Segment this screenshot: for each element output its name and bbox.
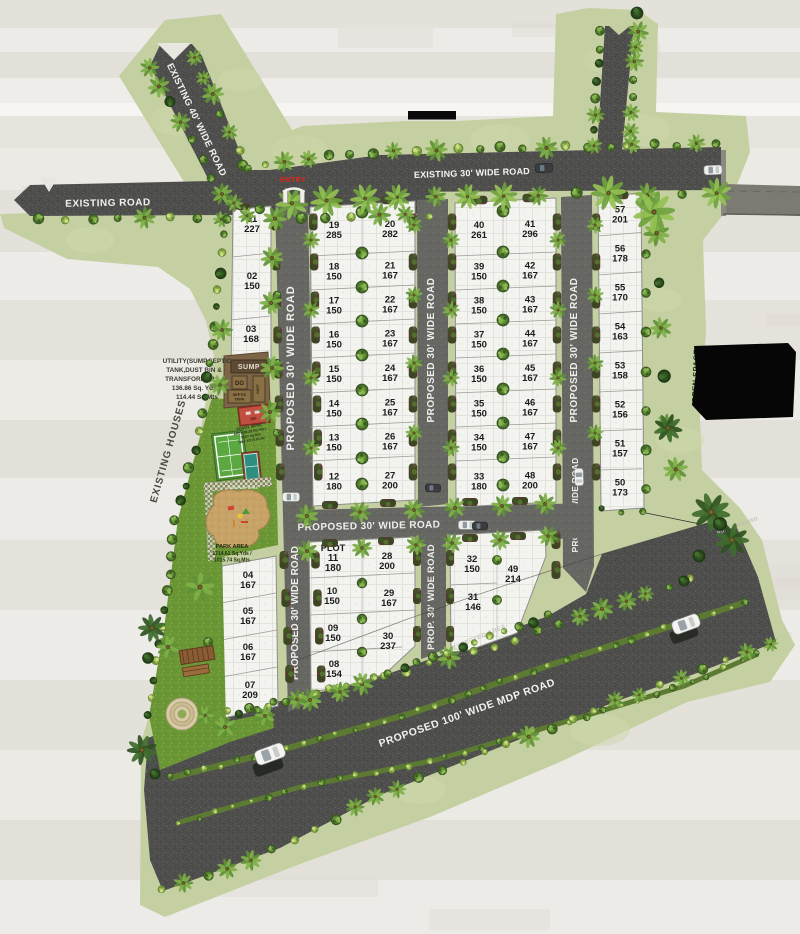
- svg-text:UTILITY(SUMP,SEPTIC: UTILITY(SUMP,SEPTIC: [163, 358, 232, 365]
- svg-text:1214.61 Sq.Yds /: 1214.61 Sq.Yds /: [212, 551, 252, 557]
- svg-text:TANK,DUST BIN &: TANK,DUST BIN &: [166, 367, 222, 374]
- svg-text:150: 150: [326, 409, 342, 420]
- svg-text:168: 168: [243, 334, 259, 345]
- svg-text:PROPOSED 30' WIDE ROAD: PROPOSED 30' WIDE ROAD: [426, 277, 437, 422]
- svg-text:KIDS PLAY AREA: KIDS PLAY AREA: [228, 486, 258, 490]
- svg-text:167: 167: [522, 373, 538, 384]
- svg-text:200: 200: [382, 481, 398, 492]
- svg-text:201: 201: [612, 215, 629, 226]
- svg-text:227: 227: [244, 224, 260, 235]
- svg-text:167: 167: [240, 652, 256, 663]
- svg-text:167: 167: [522, 305, 538, 316]
- svg-text:PARK AREA: PARK AREA: [216, 544, 249, 550]
- svg-text:163: 163: [612, 332, 628, 343]
- svg-text:150: 150: [244, 281, 260, 292]
- svg-text:154: 154: [326, 669, 343, 680]
- svg-text:TANK: TANK: [234, 398, 245, 402]
- svg-text:SUMP: SUMP: [238, 364, 260, 371]
- svg-text:170: 170: [612, 293, 628, 304]
- svg-text:150: 150: [326, 272, 342, 283]
- svg-text:167: 167: [382, 305, 398, 316]
- svg-text:214: 214: [505, 574, 522, 585]
- svg-text:167: 167: [382, 339, 398, 350]
- svg-text:PROP. 30' WIDE ROAD: PROP. 30' WIDE ROAD: [426, 544, 437, 650]
- svg-text:156: 156: [612, 410, 628, 421]
- svg-text:114.44 Sq.Mts: 114.44 Sq.Mts: [176, 394, 218, 401]
- svg-text:PROPOSED 30' WIDE ROAD: PROPOSED 30' WIDE ROAD: [285, 285, 297, 450]
- svg-text:PROPOSED 30' WIDE ROAD: PROPOSED 30' WIDE ROAD: [569, 277, 580, 422]
- svg-text:150: 150: [326, 306, 342, 317]
- svg-text:167: 167: [381, 598, 397, 609]
- svg-text:SEPTIC: SEPTIC: [233, 393, 247, 397]
- svg-text:167: 167: [240, 616, 256, 627]
- svg-text:158: 158: [612, 371, 628, 382]
- svg-text:167: 167: [522, 408, 538, 419]
- svg-text:150: 150: [326, 374, 342, 385]
- svg-text:150: 150: [324, 596, 340, 607]
- svg-text:167: 167: [522, 442, 538, 453]
- svg-text:167: 167: [240, 580, 256, 591]
- svg-text:200: 200: [379, 561, 395, 572]
- svg-text:150: 150: [326, 443, 342, 454]
- svg-text:237: 237: [380, 641, 396, 652]
- svg-text:200: 200: [522, 481, 538, 492]
- svg-text:150: 150: [471, 409, 487, 420]
- svg-text:167: 167: [522, 271, 538, 282]
- svg-text:EXISTING ROAD: EXISTING ROAD: [65, 197, 151, 209]
- svg-text:DUST: DUST: [256, 383, 260, 393]
- svg-text:180: 180: [325, 563, 342, 574]
- svg-text:180: 180: [326, 482, 342, 493]
- svg-text:157: 157: [612, 449, 628, 460]
- svg-text:167: 167: [382, 373, 398, 384]
- svg-text:150: 150: [471, 443, 487, 454]
- svg-text:DG: DG: [235, 381, 244, 387]
- svg-text:285: 285: [326, 230, 343, 241]
- svg-text:150: 150: [471, 374, 487, 385]
- svg-text:167: 167: [382, 271, 398, 282]
- svg-text:173: 173: [612, 488, 628, 499]
- svg-text:ENTRY: ENTRY: [280, 175, 306, 184]
- svg-text:282: 282: [382, 229, 398, 240]
- svg-text:1015.74 Sq.Mts: 1015.74 Sq.Mts: [214, 558, 250, 564]
- svg-text:150: 150: [471, 306, 487, 317]
- svg-text:180: 180: [471, 482, 487, 493]
- svg-text:167: 167: [522, 339, 538, 350]
- svg-text:167: 167: [382, 408, 398, 419]
- svg-text:146: 146: [465, 602, 481, 613]
- svg-text:150: 150: [464, 564, 480, 575]
- svg-text:150: 150: [325, 633, 341, 644]
- svg-text:150: 150: [326, 340, 342, 351]
- svg-text:150: 150: [471, 340, 487, 351]
- svg-text:150: 150: [471, 272, 487, 283]
- svg-text:209: 209: [242, 690, 258, 701]
- svg-text:296: 296: [522, 229, 538, 240]
- svg-text:261: 261: [471, 230, 488, 241]
- svg-text:178: 178: [612, 254, 628, 265]
- svg-text:167: 167: [382, 442, 398, 453]
